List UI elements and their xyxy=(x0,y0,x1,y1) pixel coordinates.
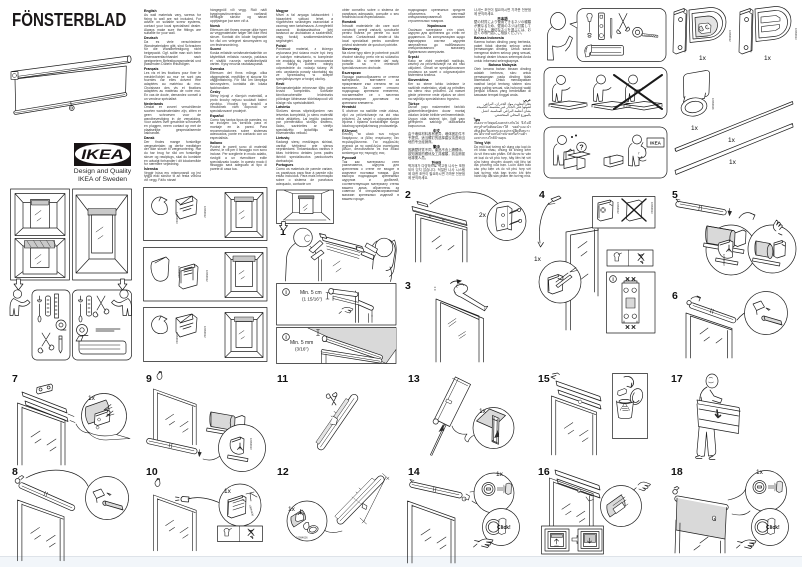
svg-text:IKEA: IKEA xyxy=(650,141,662,146)
svg-text:10094633: 10094633 xyxy=(177,266,181,278)
svg-text:Click!: Click! xyxy=(497,525,511,531)
svg-text:10094632: 10094632 xyxy=(203,206,207,218)
svg-text:10094632: 10094632 xyxy=(205,270,209,282)
svg-text:1x: 1x xyxy=(756,469,764,476)
svg-text:Click!: Click! xyxy=(766,525,780,531)
svg-text:(1 15/16"): (1 15/16") xyxy=(302,297,322,302)
svg-text:10094632: 10094632 xyxy=(728,30,732,42)
svg-text:1x: 1x xyxy=(224,488,232,495)
svg-text:10094632: 10094632 xyxy=(203,326,207,338)
svg-text:Min. 5 cm: Min. 5 cm xyxy=(300,290,322,296)
svg-text:1x: 1x xyxy=(729,159,737,166)
svg-text:10094626: 10094626 xyxy=(711,98,715,110)
svg-text:2x: 2x xyxy=(479,212,487,219)
svg-text:10094633: 10094633 xyxy=(650,202,654,214)
svg-text:10094633: 10094633 xyxy=(175,212,179,224)
svg-text:10094633: 10094633 xyxy=(175,332,179,344)
svg-text:1x: 1x xyxy=(479,408,487,415)
svg-text:10094630: 10094630 xyxy=(249,438,253,450)
svg-text:1x: 1x xyxy=(699,55,707,62)
svg-text:(3/16"): (3/16") xyxy=(295,347,309,352)
svg-text:1x: 1x xyxy=(728,137,736,144)
svg-text:10094633: 10094633 xyxy=(794,28,798,40)
svg-text:10094630: 10094630 xyxy=(722,254,726,266)
svg-text:10094632: 10094632 xyxy=(616,202,620,214)
svg-text:?: ? xyxy=(579,145,583,152)
svg-text:Min. 5 mm: Min. 5 mm xyxy=(290,340,313,346)
svg-text:1x: 1x xyxy=(88,395,96,402)
svg-text:1x: 1x xyxy=(288,506,296,513)
svg-text:1x: 1x xyxy=(534,256,542,263)
svg-text:1x: 1x xyxy=(496,471,504,478)
svg-text:1x: 1x xyxy=(764,55,772,62)
svg-text:10094626: 10094626 xyxy=(296,536,308,540)
svg-text:1x: 1x xyxy=(691,125,699,132)
